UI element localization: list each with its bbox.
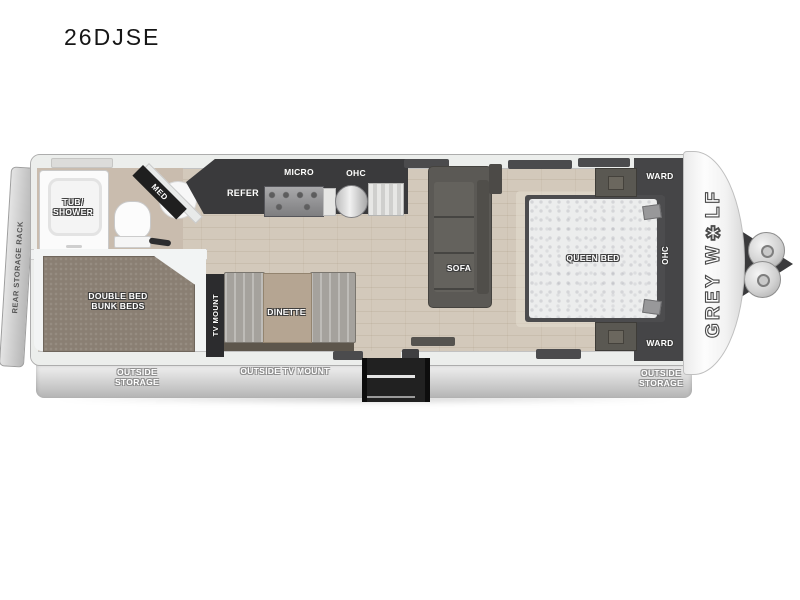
tv-mount-label: TV MOUNT — [211, 294, 220, 336]
window-bottom-1 — [333, 351, 363, 360]
floorplan-page: 26DJSE REAR STORAGE RACK TUB/ SHOWER MED — [0, 0, 800, 600]
nightstand-top — [595, 168, 637, 197]
dinette-label: DINETTE — [253, 307, 320, 317]
kitchen-ohc-label: OHC — [336, 168, 376, 178]
counter-end-cabinet — [368, 183, 404, 216]
grey-wolf-logo: GREY W✱LF — [703, 189, 725, 338]
window-top-3 — [578, 158, 630, 167]
microwave-label: MICRO — [276, 167, 322, 177]
window-top-2 — [508, 160, 572, 169]
bedroom-ohc-label: OHC — [661, 246, 671, 265]
step-tread-1 — [367, 375, 415, 378]
toilet — [114, 201, 151, 239]
entry-steps — [362, 358, 430, 402]
bathroom-window — [51, 158, 113, 168]
queen-bed-label: QUEEN BED — [529, 253, 657, 263]
headboard-shelf-top — [642, 204, 662, 220]
tub-shower-label: TUB/ SHOWER — [39, 197, 107, 217]
headboard-shelf-bottom — [642, 299, 662, 315]
propane-tank-2 — [744, 261, 781, 298]
sofa-back — [477, 180, 489, 294]
outside-storage-left-label: OUTSIDE STORAGE — [94, 367, 180, 387]
wardrobe-bottom-label: WARD — [634, 338, 686, 348]
outside-storage-right-label: OUTSIDE STORAGE — [618, 368, 704, 388]
front-cap: GREY W✱LF — [683, 151, 745, 375]
floor-ottoman — [411, 337, 455, 346]
sofa-label: SOFA — [428, 263, 490, 273]
rear-storage-rack-label: REAR STORAGE RACK — [10, 221, 25, 314]
window-bottom-2 — [536, 349, 581, 359]
bunk-beds-label: DOUBLE BED BUNK BEDS — [43, 291, 193, 311]
sofa-cushions — [434, 182, 474, 292]
sofa — [428, 166, 492, 308]
step-tread-2 — [367, 396, 415, 398]
kitchen-sink — [335, 185, 368, 218]
stove — [264, 186, 324, 217]
wardrobe-top-label: WARD — [634, 171, 686, 181]
nightstand-bottom — [595, 322, 637, 351]
bedroom-ohc: OHC — [657, 235, 675, 275]
trailer-body: TUB/ SHOWER MED REFER MICRO OHC — [30, 154, 687, 366]
sofa-side-table — [489, 164, 502, 194]
tub-faucet — [66, 245, 82, 248]
toilet-tank — [114, 236, 151, 248]
tv-mount-panel: TV MOUNT — [206, 274, 224, 357]
page-title: 26DJSE — [64, 24, 160, 51]
outside-tv-mount-label: OUTSIDE TV MOUNT — [230, 366, 340, 376]
